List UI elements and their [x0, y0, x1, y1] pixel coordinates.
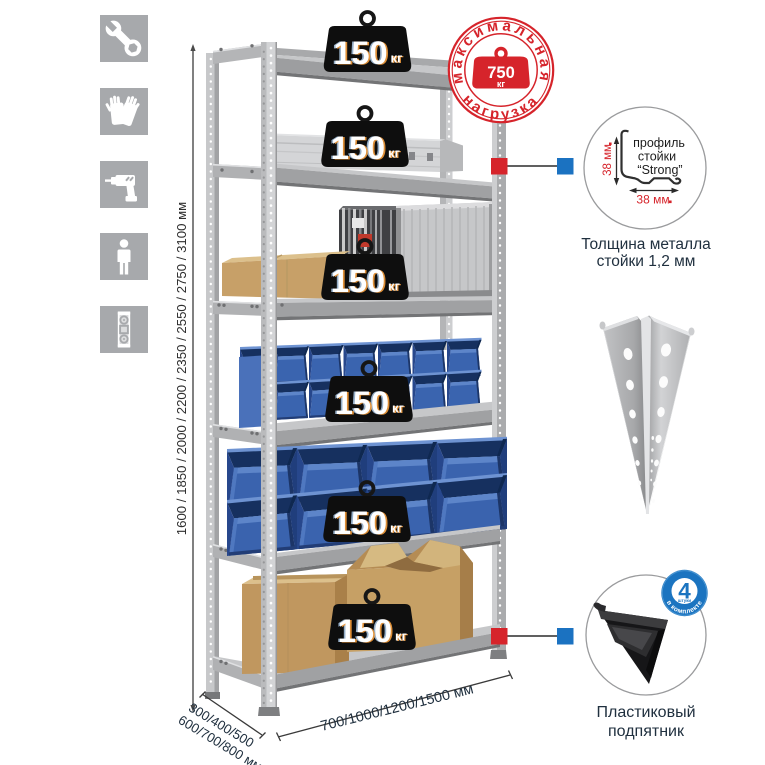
svg-text:Толщина металла: Толщина металла	[581, 236, 711, 253]
svg-text:подпятник: подпятник	[608, 723, 685, 740]
svg-text:штуки: штуки	[678, 598, 692, 603]
svg-text:профиль: профиль	[633, 136, 685, 150]
svg-text:Пластиковый: Пластиковый	[596, 704, 695, 721]
svg-text:38 мм: 38 мм	[636, 193, 669, 207]
svg-text:1600 / 1850 / 2000 / 2200 / 23: 1600 / 1850 / 2000 / 2200 / 2350 / 2550 …	[174, 202, 189, 535]
svg-text:стойки 1,2 мм: стойки 1,2 мм	[597, 253, 696, 270]
svg-text:кг: кг	[497, 79, 506, 89]
svg-text:38 мм: 38 мм	[602, 144, 614, 176]
svg-text:стойки: стойки	[638, 150, 676, 164]
svg-text:“Strong”: “Strong”	[637, 163, 682, 177]
